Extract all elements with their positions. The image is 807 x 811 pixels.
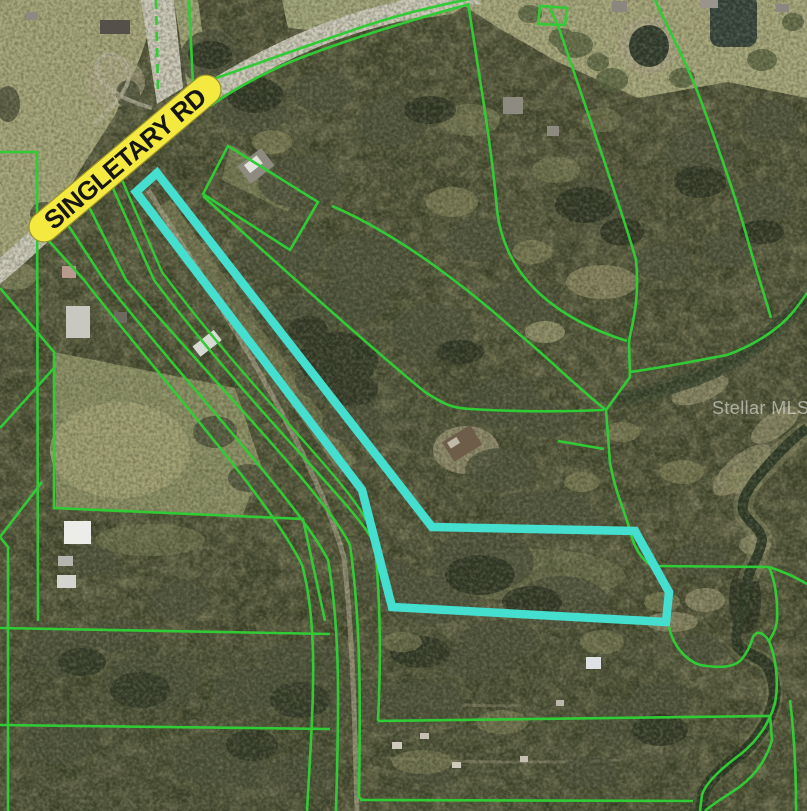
svg-text:Stellar MLS: Stellar MLS (712, 398, 807, 418)
